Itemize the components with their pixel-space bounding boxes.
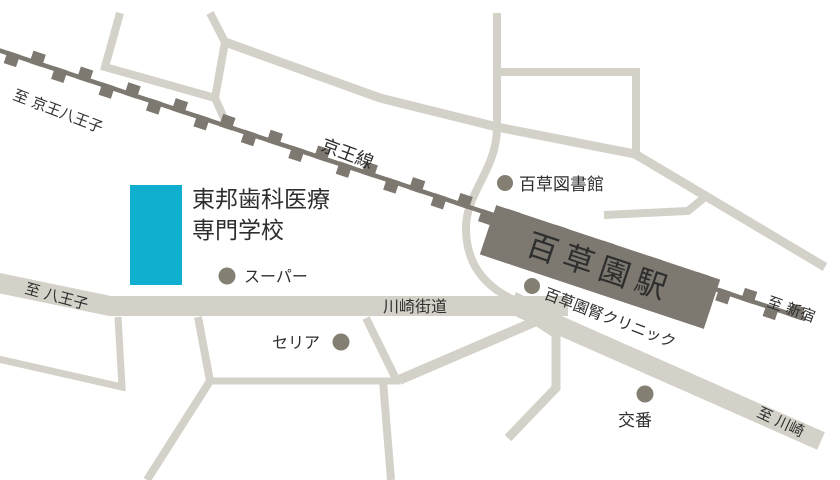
police-box-label: 交番 [618, 411, 652, 431]
clinic-marker [524, 278, 540, 294]
supermarket-marker [219, 268, 236, 285]
roads-layer [0, 13, 825, 480]
school-name-line1: 東邦歯科医療 [192, 187, 330, 213]
supermarket-label: スーパー [244, 267, 308, 286]
to-keio-hachioji-label: 至 京王八王子 [11, 86, 106, 137]
road-junction-southwest [399, 316, 548, 380]
road-connector-mid [366, 318, 396, 480]
road-top-fork [210, 13, 228, 127]
to-hachioji-label: 至 八王子 [23, 279, 90, 313]
road-behind-station [604, 197, 705, 215]
to-kawasaki-label: 至 川崎 [754, 403, 807, 440]
seria-label: セリア [272, 333, 320, 352]
school-name-line2: 専門学校 [192, 218, 284, 244]
road-top-left [105, 13, 215, 98]
library-label: 百草図書館 [519, 175, 604, 195]
school-building [130, 185, 182, 285]
road-connector-left [147, 317, 210, 480]
library-marker [497, 175, 513, 191]
road-left-vertical [0, 317, 122, 387]
police-box-marker [637, 386, 654, 403]
access-map: 百草園駅 東邦歯科医療 専門学校 至 京王八王子 京王線 至 新宿 百草図書館 … [0, 0, 840, 480]
kawasaki-kaido-label: 川崎街道 [383, 297, 447, 316]
seria-marker [333, 334, 350, 351]
to-shinjuku-label: 至 新宿 [765, 293, 818, 326]
